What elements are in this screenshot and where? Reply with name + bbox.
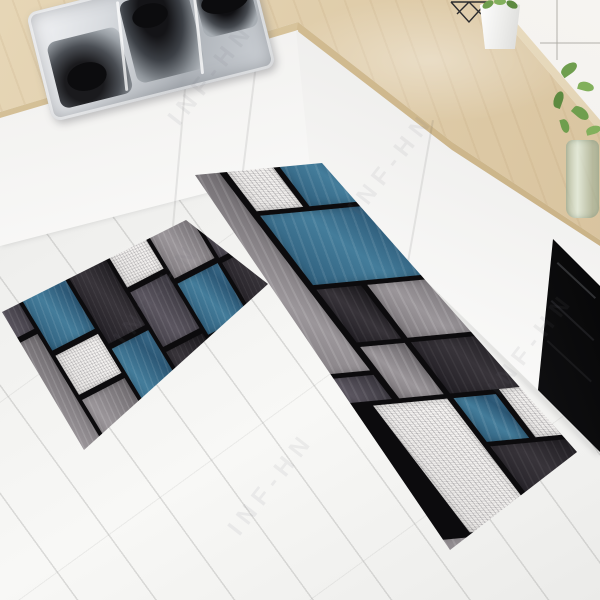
glass-vase <box>566 140 599 218</box>
photo-kitchen-scene: INF-HN INF-HN INF-HN INF-HN INF-HN <box>0 0 600 600</box>
succulent-pot <box>478 4 522 49</box>
tile-seam <box>540 42 600 44</box>
tile-seam <box>556 0 558 60</box>
